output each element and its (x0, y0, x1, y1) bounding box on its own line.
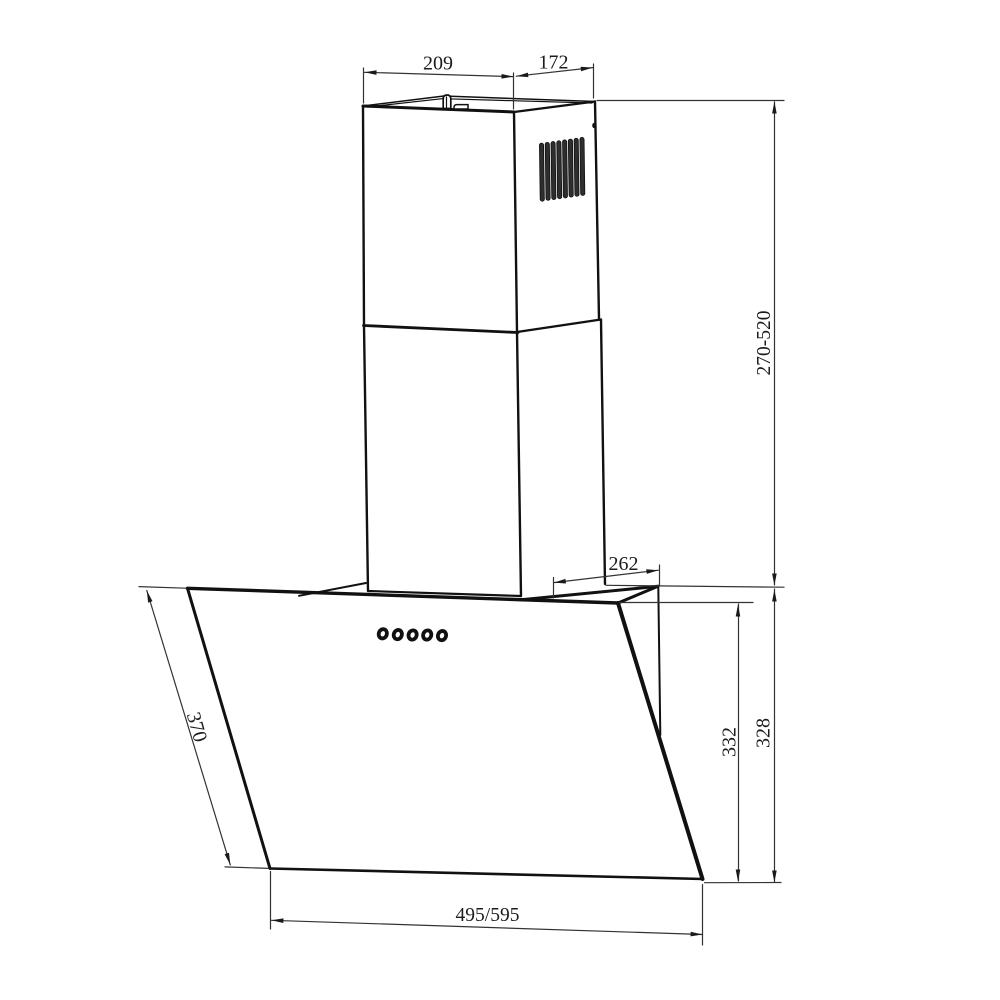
svg-text:209: 209 (423, 53, 453, 75)
svg-text:495/595: 495/595 (456, 905, 520, 926)
svg-text:332: 332 (719, 727, 741, 757)
svg-text:262: 262 (609, 553, 639, 575)
svg-text:172: 172 (539, 52, 569, 74)
svg-text:370: 370 (182, 710, 211, 745)
svg-text:270-520: 270-520 (754, 311, 775, 376)
svg-text:328: 328 (753, 718, 775, 748)
